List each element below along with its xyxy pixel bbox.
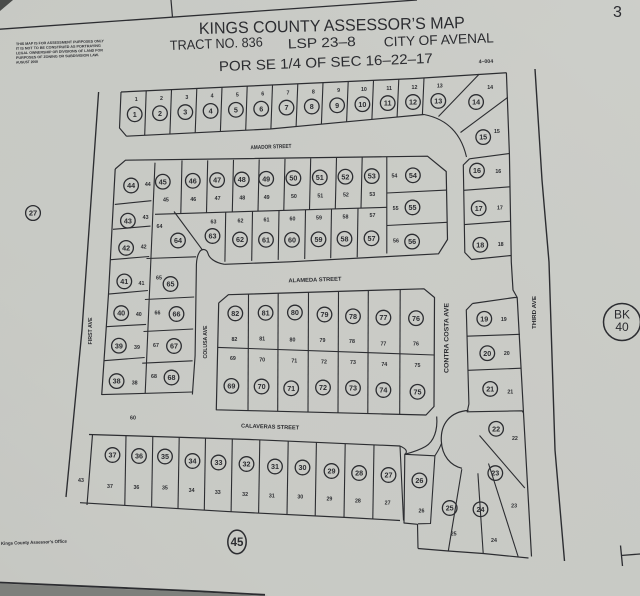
svg-text:7: 7 xyxy=(285,103,289,112)
svg-text:60: 60 xyxy=(288,235,296,244)
svg-text:35: 35 xyxy=(162,486,168,492)
svg-text:50: 50 xyxy=(291,194,297,200)
svg-text:38: 38 xyxy=(132,380,138,386)
svg-text:77: 77 xyxy=(379,313,387,322)
svg-text:37: 37 xyxy=(109,451,117,460)
svg-text:47: 47 xyxy=(213,176,221,185)
svg-text:40: 40 xyxy=(615,320,629,334)
svg-text:43: 43 xyxy=(124,216,132,225)
svg-text:34: 34 xyxy=(189,488,195,494)
svg-text:11: 11 xyxy=(384,99,392,108)
svg-text:26: 26 xyxy=(419,509,425,515)
svg-text:55: 55 xyxy=(393,206,399,212)
svg-text:COLUSA AVE: COLUSA AVE xyxy=(203,325,209,358)
svg-text:82: 82 xyxy=(231,337,237,343)
svg-text:56: 56 xyxy=(408,237,416,246)
svg-text:73: 73 xyxy=(349,384,357,393)
svg-text:66: 66 xyxy=(155,311,161,317)
svg-text:FIRST AVE: FIRST AVE xyxy=(88,317,94,344)
svg-text:60: 60 xyxy=(130,416,136,422)
svg-text:37: 37 xyxy=(107,484,113,490)
svg-text:74: 74 xyxy=(381,362,387,368)
svg-text:63: 63 xyxy=(209,232,217,241)
svg-text:4: 4 xyxy=(209,107,213,116)
svg-text:16: 16 xyxy=(473,166,481,175)
svg-text:54: 54 xyxy=(409,171,417,180)
svg-text:69: 69 xyxy=(230,356,236,362)
svg-text:56: 56 xyxy=(393,238,399,244)
svg-text:13: 13 xyxy=(434,97,442,106)
svg-text:71: 71 xyxy=(291,358,297,364)
svg-text:45: 45 xyxy=(231,537,244,549)
svg-text:43: 43 xyxy=(78,478,84,484)
svg-text:57: 57 xyxy=(368,234,376,243)
svg-text:49: 49 xyxy=(262,174,270,183)
svg-text:33: 33 xyxy=(215,458,223,467)
svg-text:17: 17 xyxy=(497,206,503,212)
svg-text:51: 51 xyxy=(317,193,323,199)
svg-text:67: 67 xyxy=(153,343,159,349)
svg-text:17: 17 xyxy=(475,204,483,213)
svg-text:39: 39 xyxy=(134,345,140,351)
svg-text:12: 12 xyxy=(409,98,417,107)
svg-text:15: 15 xyxy=(479,133,487,142)
svg-text:18: 18 xyxy=(476,240,484,249)
svg-text:51: 51 xyxy=(316,173,324,182)
svg-text:44: 44 xyxy=(145,182,151,188)
svg-text:47: 47 xyxy=(215,196,221,202)
svg-text:27: 27 xyxy=(385,500,391,506)
svg-text:65: 65 xyxy=(156,276,162,282)
svg-text:23: 23 xyxy=(491,469,499,478)
svg-text:53: 53 xyxy=(369,192,375,198)
svg-text:52: 52 xyxy=(343,193,349,199)
svg-text:5: 5 xyxy=(234,105,238,114)
svg-text:14: 14 xyxy=(487,85,493,91)
svg-text:44: 44 xyxy=(127,181,135,190)
svg-text:32: 32 xyxy=(243,460,251,469)
svg-text:61: 61 xyxy=(262,235,270,244)
svg-text:72: 72 xyxy=(321,360,327,366)
svg-text:20: 20 xyxy=(483,349,491,358)
svg-text:64: 64 xyxy=(174,236,182,245)
svg-text:77: 77 xyxy=(380,341,386,347)
svg-text:58: 58 xyxy=(343,215,349,221)
svg-text:10: 10 xyxy=(361,87,367,93)
svg-text:31: 31 xyxy=(269,493,275,499)
svg-text:63: 63 xyxy=(211,220,217,226)
svg-text:68: 68 xyxy=(151,374,157,380)
svg-text:2: 2 xyxy=(160,96,163,102)
svg-text:30: 30 xyxy=(299,463,307,472)
svg-text:79: 79 xyxy=(321,310,329,319)
svg-text:28: 28 xyxy=(355,499,361,505)
svg-text:76: 76 xyxy=(413,341,419,347)
svg-text:21: 21 xyxy=(486,385,494,394)
svg-text:7: 7 xyxy=(287,90,290,96)
svg-text:46: 46 xyxy=(189,176,197,185)
svg-text:72: 72 xyxy=(319,383,327,392)
svg-text:20: 20 xyxy=(504,351,510,357)
svg-text:48: 48 xyxy=(238,175,246,184)
svg-text:26: 26 xyxy=(415,476,423,485)
svg-text:80: 80 xyxy=(291,308,299,317)
svg-text:35: 35 xyxy=(161,452,169,461)
svg-text:27: 27 xyxy=(29,209,37,218)
svg-text:25: 25 xyxy=(451,532,457,538)
svg-text:57: 57 xyxy=(370,213,376,219)
svg-text:75: 75 xyxy=(414,387,422,396)
svg-text:45: 45 xyxy=(159,177,167,186)
svg-text:58: 58 xyxy=(341,234,349,243)
svg-text:10: 10 xyxy=(358,100,366,109)
svg-text:41: 41 xyxy=(120,277,128,286)
svg-text:69: 69 xyxy=(227,382,235,391)
svg-text:41: 41 xyxy=(139,281,145,287)
svg-text:13: 13 xyxy=(437,84,443,90)
svg-text:42: 42 xyxy=(141,245,147,251)
svg-text:43: 43 xyxy=(143,215,149,221)
svg-text:3: 3 xyxy=(185,95,188,101)
svg-text:15: 15 xyxy=(494,129,500,135)
svg-text:16: 16 xyxy=(495,169,501,175)
svg-text:40: 40 xyxy=(117,309,125,318)
svg-text:12: 12 xyxy=(412,85,418,91)
svg-text:78: 78 xyxy=(349,312,357,321)
svg-text:76: 76 xyxy=(412,314,420,323)
svg-text:75: 75 xyxy=(415,363,421,369)
svg-text:82: 82 xyxy=(231,309,239,318)
svg-text:62: 62 xyxy=(238,219,244,225)
svg-text:61: 61 xyxy=(264,218,270,224)
svg-text:AUGUST 2008: AUGUST 2008 xyxy=(16,60,38,65)
svg-text:74: 74 xyxy=(379,386,387,395)
svg-text:70: 70 xyxy=(258,382,266,391)
svg-text:25: 25 xyxy=(446,504,454,513)
svg-text:8: 8 xyxy=(312,89,315,95)
svg-text:36: 36 xyxy=(135,452,143,461)
svg-text:46: 46 xyxy=(190,197,196,203)
svg-text:64: 64 xyxy=(157,224,163,230)
svg-text:29: 29 xyxy=(326,496,332,502)
svg-text:4–004: 4–004 xyxy=(479,59,494,66)
svg-text:30: 30 xyxy=(297,495,303,501)
svg-text:48: 48 xyxy=(239,196,245,202)
svg-text:CONTRA COSTA AVE: CONTRA COSTA AVE xyxy=(445,303,451,373)
svg-text:29: 29 xyxy=(328,467,336,476)
svg-text:81: 81 xyxy=(262,308,270,317)
svg-text:28: 28 xyxy=(355,469,363,478)
svg-text:50: 50 xyxy=(289,174,297,183)
svg-text:14: 14 xyxy=(472,98,480,107)
svg-text:18: 18 xyxy=(498,242,504,248)
svg-text:45: 45 xyxy=(163,198,169,204)
svg-text:52: 52 xyxy=(341,172,349,181)
svg-text:LSP 23–8: LSP 23–8 xyxy=(288,34,357,52)
svg-text:9: 9 xyxy=(335,101,339,110)
svg-text:22: 22 xyxy=(512,436,518,442)
svg-text:3: 3 xyxy=(613,4,622,21)
svg-text:80: 80 xyxy=(290,337,296,343)
svg-text:54: 54 xyxy=(391,174,397,180)
svg-text:1: 1 xyxy=(135,97,138,103)
svg-text:55: 55 xyxy=(409,203,417,212)
svg-text:49: 49 xyxy=(264,195,270,201)
svg-text:22: 22 xyxy=(492,424,500,433)
svg-text:1: 1 xyxy=(133,110,137,119)
svg-text:59: 59 xyxy=(316,216,322,222)
svg-text:19: 19 xyxy=(480,314,488,323)
svg-text:2: 2 xyxy=(158,109,162,118)
svg-text:34: 34 xyxy=(189,457,197,466)
svg-text:33: 33 xyxy=(215,490,221,496)
svg-text:27: 27 xyxy=(385,471,393,480)
svg-text:40: 40 xyxy=(136,312,142,318)
svg-text:68: 68 xyxy=(168,373,176,382)
svg-text:32: 32 xyxy=(242,492,248,498)
svg-text:24: 24 xyxy=(491,538,497,544)
svg-text:5: 5 xyxy=(236,93,239,99)
svg-text:39: 39 xyxy=(115,341,123,350)
svg-text:23: 23 xyxy=(511,503,517,509)
svg-text:65: 65 xyxy=(167,280,175,289)
svg-text:53: 53 xyxy=(368,172,376,181)
svg-text:4: 4 xyxy=(211,94,214,100)
svg-text:71: 71 xyxy=(287,384,295,393)
svg-text:24: 24 xyxy=(477,505,485,514)
svg-text:6: 6 xyxy=(261,92,264,98)
svg-text:60: 60 xyxy=(290,217,296,223)
svg-text:36: 36 xyxy=(133,485,139,491)
svg-text:21: 21 xyxy=(507,389,513,395)
svg-text:38: 38 xyxy=(113,377,121,386)
svg-text:11: 11 xyxy=(386,86,392,92)
svg-text:59: 59 xyxy=(315,235,323,244)
svg-text:66: 66 xyxy=(173,310,181,319)
svg-text:62: 62 xyxy=(236,235,244,244)
svg-text:6: 6 xyxy=(259,104,263,113)
svg-text:70: 70 xyxy=(259,357,265,363)
svg-text:9: 9 xyxy=(337,88,340,94)
svg-text:THIRD AVE: THIRD AVE xyxy=(532,296,538,329)
svg-text:42: 42 xyxy=(122,244,130,253)
svg-text:19: 19 xyxy=(501,317,507,323)
svg-text:67: 67 xyxy=(170,342,178,351)
svg-text:3: 3 xyxy=(183,108,187,117)
svg-text:73: 73 xyxy=(350,360,356,366)
svg-text:78: 78 xyxy=(349,339,355,345)
svg-text:8: 8 xyxy=(310,102,314,111)
svg-text:79: 79 xyxy=(320,338,326,344)
svg-text:31: 31 xyxy=(271,462,279,471)
svg-text:81: 81 xyxy=(259,337,265,343)
